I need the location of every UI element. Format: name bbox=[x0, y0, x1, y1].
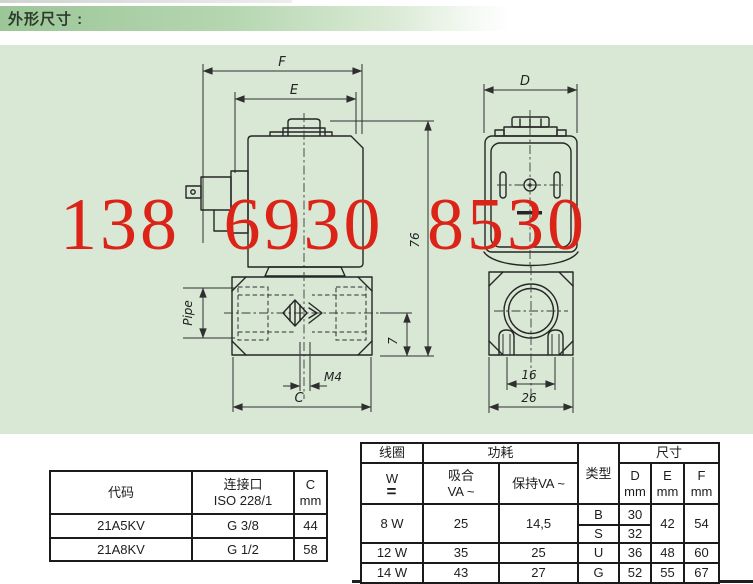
code-table-row: 21A8KV G 1/2 58 bbox=[50, 538, 327, 561]
spec-row-8w-b: 8 W 25 14,5 B 30 42 54 bbox=[361, 504, 719, 525]
f-header-cell: Fmm bbox=[684, 463, 719, 504]
spec-header-row-2: W = 吸合 VA ~ 保持VA ~ Dmm Emm Fmm bbox=[361, 463, 719, 504]
wattage-cell: 14 W bbox=[361, 563, 423, 583]
pull-in-cell: 35 bbox=[423, 543, 499, 563]
m4-label: M4 bbox=[324, 370, 342, 384]
c-dim-header-cell: C mm bbox=[294, 471, 327, 514]
e-cell: 42 bbox=[651, 504, 684, 543]
header-bar: 外形尺寸 : bbox=[0, 6, 512, 31]
f-cell: 54 bbox=[684, 504, 719, 543]
c-dim-cell: 58 bbox=[294, 538, 327, 561]
code-table-row: 21A5KV G 3/8 44 bbox=[50, 514, 327, 538]
spec-table: 线圈 功耗 类型 尺寸 W = 吸合 VA ~ 保持VA ~ Dmm Emm F… bbox=[360, 442, 720, 584]
type-cell: S bbox=[578, 525, 619, 543]
f-cell: 60 bbox=[684, 543, 719, 563]
d-cell: 52 bbox=[619, 563, 651, 583]
size-header-cell: 尺寸 bbox=[619, 443, 719, 463]
top-divider bbox=[0, 0, 292, 3]
wattage-header-cell: W = bbox=[361, 463, 423, 504]
e-cell: 48 bbox=[651, 543, 684, 563]
holding-cell: 14,5 bbox=[499, 504, 578, 543]
pipe-label: Pipe bbox=[181, 300, 195, 326]
e-header-cell: Emm bbox=[651, 463, 684, 504]
holding-header-cell: 保持VA ~ bbox=[499, 463, 578, 504]
code-table-header-row: 代码 连接口 ISO 228/1 C mm bbox=[50, 471, 327, 514]
wattage-cell: 12 W bbox=[361, 543, 423, 563]
page-title: 外形尺寸 : bbox=[0, 8, 83, 29]
c-dim-cell: 44 bbox=[294, 514, 327, 538]
d-cell: 36 bbox=[619, 543, 651, 563]
code-cell: 21A8KV bbox=[50, 538, 192, 561]
pull-in-cell: 43 bbox=[423, 563, 499, 583]
connection-cell: G 1/2 bbox=[192, 538, 294, 561]
connection-header-cell: 连接口 ISO 228/1 bbox=[192, 471, 294, 514]
power-header-cell: 功耗 bbox=[423, 443, 578, 463]
code-header-cell: 代码 bbox=[50, 471, 192, 514]
spec-row-12w: 12 W 35 25 U 36 48 60 bbox=[361, 543, 719, 563]
watermark-text: 138 6930 8530 bbox=[60, 188, 587, 262]
dim-26-label: 26 bbox=[521, 391, 537, 405]
type-cell: B bbox=[578, 504, 619, 525]
spec-header-row-1: 线圈 功耗 类型 尺寸 bbox=[361, 443, 719, 463]
coil-header-cell: 线圈 bbox=[361, 443, 423, 463]
type-header-cell: 类型 bbox=[578, 443, 619, 504]
pull-in-cell: 25 bbox=[423, 504, 499, 543]
type-cell: U bbox=[578, 543, 619, 563]
code-table: 代码 连接口 ISO 228/1 C mm 21A5KV G 3/8 44 21… bbox=[49, 470, 328, 562]
spec-row-14w: 14 W 43 27 G 52 55 67 bbox=[361, 563, 719, 583]
dim-d-label: D bbox=[520, 74, 530, 89]
dim-e-label: E bbox=[290, 83, 299, 98]
f-cell: 67 bbox=[684, 563, 719, 583]
holding-cell: 25 bbox=[499, 543, 578, 563]
type-cell: G bbox=[578, 563, 619, 583]
d-cell: 30 bbox=[619, 504, 651, 525]
dim-c-label: C bbox=[294, 391, 304, 406]
dim-f-label: F bbox=[278, 55, 286, 70]
dim-16-label: 16 bbox=[521, 368, 537, 382]
dc-symbol: = bbox=[362, 487, 422, 496]
e-cell: 55 bbox=[651, 563, 684, 583]
code-cell: 21A5KV bbox=[50, 514, 192, 538]
pull-in-header-cell: 吸合 VA ~ bbox=[423, 463, 499, 504]
wattage-cell: 8 W bbox=[361, 504, 423, 543]
holding-cell: 27 bbox=[499, 563, 578, 583]
connection-cell: G 3/8 bbox=[192, 514, 294, 538]
dim-7-label: 7 bbox=[386, 337, 400, 345]
d-header-cell: Dmm bbox=[619, 463, 651, 504]
d-cell: 32 bbox=[619, 525, 651, 543]
